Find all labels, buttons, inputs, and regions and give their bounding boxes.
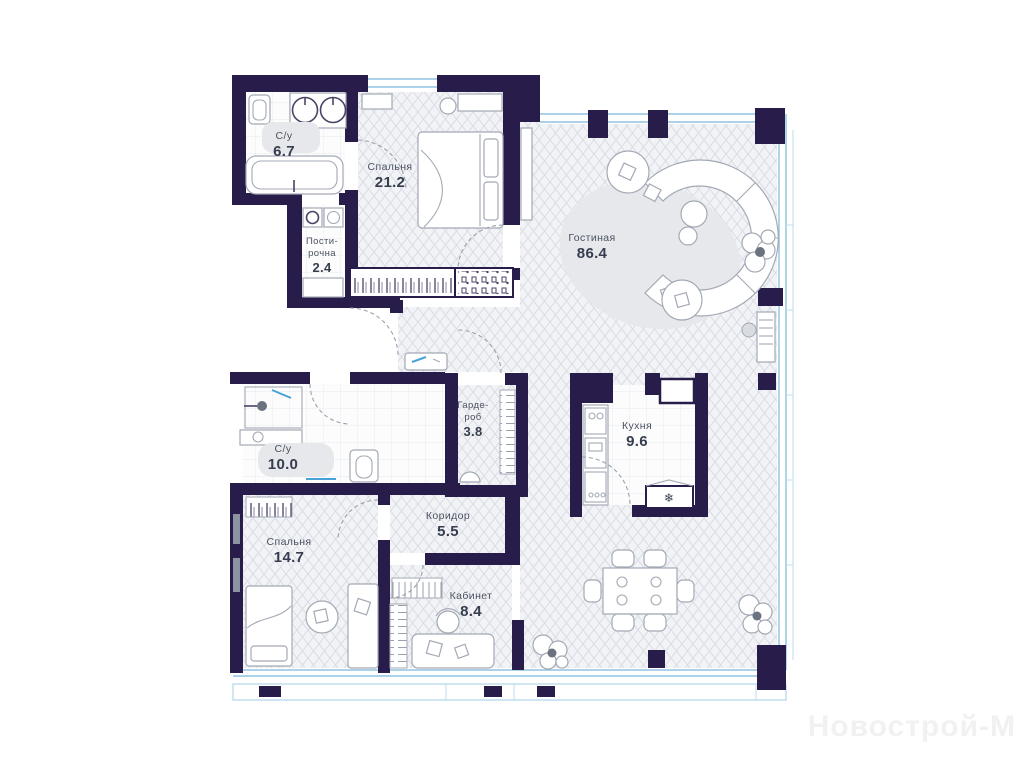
balcony-strip	[233, 684, 786, 700]
media-console	[521, 128, 532, 220]
washing-machine	[324, 208, 343, 227]
office-chair	[437, 611, 459, 633]
pillow	[251, 646, 287, 661]
facade-block	[484, 686, 502, 697]
window-mark	[233, 514, 240, 544]
toilet	[350, 450, 378, 482]
closet-row	[350, 268, 513, 297]
closet	[246, 497, 292, 517]
shower-head	[257, 401, 267, 411]
pillow	[484, 139, 498, 177]
column	[588, 110, 608, 138]
column	[758, 288, 783, 306]
bookshelf	[392, 578, 442, 598]
laundry-shelf	[303, 278, 343, 297]
floor-corridor	[390, 495, 520, 553]
hall-console	[405, 353, 447, 370]
floor-plan-page: С/у 6.7 Спальня 21.2 Пости- рочна 2.4 Го…	[0, 0, 1024, 768]
window-bottom	[233, 668, 786, 678]
stool	[440, 98, 456, 114]
column	[755, 108, 785, 144]
facade-block	[259, 686, 281, 697]
sink-counter	[240, 430, 302, 445]
bathtub	[258, 443, 334, 477]
pillow	[484, 182, 498, 220]
coffee-table	[679, 227, 697, 245]
column	[757, 645, 786, 690]
dining-chair	[644, 550, 666, 567]
column	[648, 110, 668, 138]
hanging-clothes	[354, 272, 452, 293]
shoe-shelf	[458, 271, 510, 294]
dining-chair	[612, 550, 634, 567]
desk	[348, 584, 378, 668]
coffee-table	[681, 201, 707, 227]
dining-chair	[644, 614, 666, 631]
window-mark	[233, 558, 240, 592]
column	[758, 373, 776, 390]
watermark: Новострой-М	[808, 710, 1016, 744]
desk	[412, 634, 494, 668]
decor-sphere	[742, 323, 756, 337]
shelf	[362, 94, 392, 109]
window-bedroom-1	[368, 76, 437, 91]
dining-chair	[584, 580, 601, 602]
vent-shaft	[660, 379, 694, 403]
bath-mat	[262, 122, 320, 153]
dining-chair	[612, 614, 634, 631]
dining-table	[603, 568, 677, 614]
dining-chair	[677, 580, 694, 602]
bookshelf	[390, 604, 407, 668]
floor-plan-drawing	[0, 0, 1024, 768]
window-living-right	[777, 114, 793, 670]
column	[648, 650, 665, 668]
floor-entry	[297, 307, 398, 372]
facade-block	[537, 686, 555, 697]
pillar	[512, 620, 524, 670]
dresser	[458, 94, 502, 111]
floor-passage	[528, 373, 570, 497]
kitchen-counter	[583, 405, 608, 505]
